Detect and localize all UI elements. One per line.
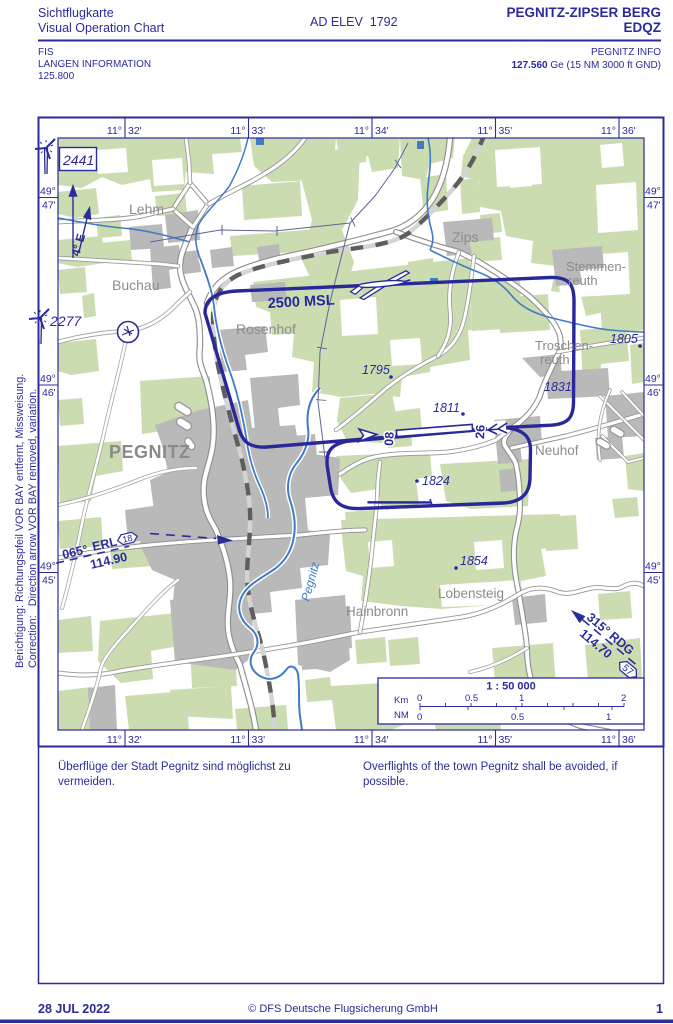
svg-text:© DFS Deutsche Flugsicherung G: © DFS Deutsche Flugsicherung GmbH bbox=[248, 1003, 438, 1015]
svg-text:36': 36' bbox=[622, 734, 636, 746]
svg-text:PEGNITZ INFO: PEGNITZ INFO bbox=[591, 47, 661, 58]
svg-text:34': 34' bbox=[375, 734, 389, 746]
svg-text:0.5: 0.5 bbox=[465, 693, 478, 704]
svg-text:46': 46' bbox=[42, 387, 56, 399]
svg-text:Berichtigung: Richtungspfeil V: Berichtigung: Richtungspfeil VOR BAY ent… bbox=[14, 374, 26, 668]
svg-text:possible.: possible. bbox=[363, 776, 408, 788]
svg-text:1: 1 bbox=[606, 712, 611, 723]
svg-text:08: 08 bbox=[382, 431, 397, 446]
svg-text:11°: 11° bbox=[354, 125, 369, 137]
svg-text:1 : 50 000: 1 : 50 000 bbox=[486, 681, 536, 693]
svg-text:49°: 49° bbox=[40, 186, 56, 198]
svg-text:Correction: Direction arrow: Correction: Direction arrow VOR BAY remo… bbox=[27, 389, 39, 668]
svg-text:11°: 11° bbox=[477, 125, 492, 137]
svg-text:11°: 11° bbox=[601, 734, 616, 746]
svg-text:Visual Operation Chart: Visual Operation Chart bbox=[38, 21, 165, 35]
svg-text:Lobensteig: Lobensteig bbox=[438, 586, 504, 601]
svg-text:49°: 49° bbox=[645, 561, 661, 573]
svg-text:Zips: Zips bbox=[452, 229, 478, 245]
svg-text:11°: 11° bbox=[230, 125, 245, 137]
svg-text:AD ELEV 1792: AD ELEV 1792 bbox=[310, 15, 398, 29]
svg-text:47': 47' bbox=[647, 200, 661, 212]
svg-text:1824: 1824 bbox=[422, 474, 450, 488]
svg-text:0: 0 bbox=[417, 712, 422, 723]
svg-text:49°: 49° bbox=[645, 186, 661, 198]
svg-text:LANGEN INFORMATION: LANGEN INFORMATION bbox=[38, 59, 151, 70]
svg-text:127.560 Ge (15 NM 3000 ft GND): 127.560 Ge (15 NM 3000 ft GND) bbox=[511, 60, 661, 71]
svg-text:32': 32' bbox=[128, 734, 142, 746]
svg-text:46': 46' bbox=[647, 387, 661, 399]
svg-text:1831: 1831 bbox=[544, 380, 572, 394]
svg-text:11°: 11° bbox=[601, 125, 616, 137]
svg-text:1811: 1811 bbox=[433, 401, 460, 415]
svg-text:125.800: 125.800 bbox=[38, 71, 75, 82]
svg-text:Troschen-: Troschen- bbox=[535, 338, 593, 353]
svg-text:vermeiden.: vermeiden. bbox=[58, 776, 115, 788]
svg-text:Stemmen-: Stemmen- bbox=[566, 259, 626, 274]
svg-text:47': 47' bbox=[42, 200, 56, 212]
svg-text:1854: 1854 bbox=[460, 554, 488, 568]
svg-text:0.5: 0.5 bbox=[511, 712, 524, 723]
svg-text:11°: 11° bbox=[477, 734, 492, 746]
svg-text:PEGNITZ-ZIPSER BERG: PEGNITZ-ZIPSER BERG bbox=[506, 5, 661, 20]
svg-text:11°: 11° bbox=[107, 125, 122, 137]
svg-text:FIS: FIS bbox=[38, 47, 54, 58]
svg-text:reuth: reuth bbox=[568, 273, 598, 288]
svg-text:33': 33' bbox=[252, 125, 266, 137]
svg-text:49°: 49° bbox=[645, 373, 661, 385]
svg-text:0: 0 bbox=[417, 693, 422, 704]
svg-text:reuth: reuth bbox=[540, 352, 570, 367]
svg-text:Rosenhof: Rosenhof bbox=[236, 321, 296, 337]
svg-text:Overflights of the town Pegnit: Overflights of the town Pegnitz shall be… bbox=[363, 761, 618, 773]
svg-text:26: 26 bbox=[473, 424, 488, 439]
svg-text:45': 45' bbox=[42, 575, 56, 587]
svg-text:45': 45' bbox=[647, 575, 661, 587]
svg-text:1: 1 bbox=[519, 693, 524, 704]
svg-text:11°: 11° bbox=[230, 734, 245, 746]
svg-text:34': 34' bbox=[375, 125, 389, 137]
svg-text:35': 35' bbox=[499, 734, 513, 746]
svg-text:11°: 11° bbox=[107, 734, 122, 746]
svg-text:2441: 2441 bbox=[62, 152, 94, 168]
svg-text:NM: NM bbox=[394, 710, 409, 721]
svg-text:49°: 49° bbox=[40, 373, 56, 385]
svg-text:PEGNITZ: PEGNITZ bbox=[109, 442, 191, 462]
svg-text:1795: 1795 bbox=[362, 363, 390, 377]
svg-text:Lehm: Lehm bbox=[129, 201, 164, 217]
svg-text:Hainbronn: Hainbronn bbox=[346, 604, 408, 619]
svg-text:2277: 2277 bbox=[49, 313, 82, 329]
svg-text:1: 1 bbox=[656, 1002, 663, 1016]
svg-text:33': 33' bbox=[252, 734, 266, 746]
svg-text:Km: Km bbox=[394, 695, 408, 706]
svg-text:Sichtflugkarte: Sichtflugkarte bbox=[38, 6, 114, 20]
svg-text:49°: 49° bbox=[40, 561, 56, 573]
svg-text:Überflüge der Stadt Pegnitz si: Überflüge der Stadt Pegnitz sind möglich… bbox=[58, 761, 291, 773]
svg-text:Buchau: Buchau bbox=[112, 277, 159, 293]
svg-text:35': 35' bbox=[499, 125, 513, 137]
svg-text:Neuhof: Neuhof bbox=[535, 443, 579, 458]
svg-text:2: 2 bbox=[621, 693, 626, 704]
svg-text:36': 36' bbox=[622, 125, 636, 137]
svg-text:28 JUL 2022: 28 JUL 2022 bbox=[38, 1002, 110, 1016]
svg-text:1805: 1805 bbox=[610, 332, 638, 346]
svg-text:32': 32' bbox=[128, 125, 142, 137]
svg-text:11°: 11° bbox=[354, 734, 369, 746]
svg-text:EDQZ: EDQZ bbox=[623, 20, 661, 35]
